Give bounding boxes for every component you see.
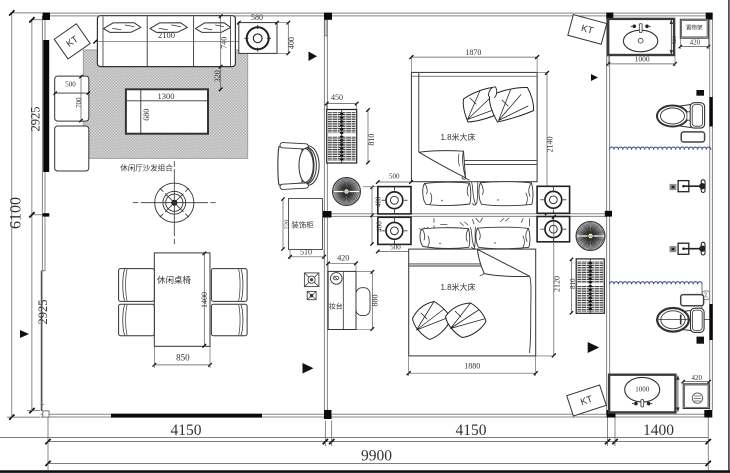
svg-text:420: 420 [337, 254, 349, 263]
svg-text:510: 510 [300, 248, 312, 257]
svg-text:1870: 1870 [465, 48, 481, 57]
svg-text:220: 220 [284, 220, 291, 230]
svg-text:1.8米大床: 1.8米大床 [440, 282, 475, 292]
svg-text:妆台: 妆台 [329, 302, 343, 311]
svg-text:400: 400 [287, 37, 296, 49]
svg-text:400: 400 [375, 196, 383, 207]
svg-text:400: 400 [376, 221, 384, 232]
svg-text:装饰柜: 装饰柜 [291, 220, 314, 230]
svg-text:1000: 1000 [635, 386, 650, 394]
svg-text:2140: 2140 [546, 137, 555, 153]
svg-text:9900: 9900 [361, 447, 392, 464]
svg-text:1000: 1000 [635, 55, 650, 64]
svg-text:2925: 2925 [36, 300, 50, 325]
svg-text:450: 450 [331, 93, 343, 102]
svg-text:2925: 2925 [29, 107, 43, 132]
svg-text:810: 810 [569, 278, 577, 289]
svg-text:420: 420 [692, 374, 703, 382]
svg-text:置物架: 置物架 [686, 24, 703, 32]
svg-text:700: 700 [75, 97, 83, 108]
svg-text:420: 420 [690, 38, 701, 46]
svg-text:850: 850 [176, 352, 190, 362]
svg-text:500: 500 [389, 173, 400, 181]
svg-text:休闲桌椅: 休闲桌椅 [157, 275, 192, 285]
svg-text:880: 880 [371, 295, 380, 307]
svg-text:4150: 4150 [171, 422, 202, 439]
svg-text:2100: 2100 [158, 30, 175, 40]
svg-text:680: 680 [142, 109, 151, 121]
svg-text:1400: 1400 [643, 422, 674, 439]
svg-text:1.8米大床: 1.8米大床 [440, 132, 475, 142]
svg-text:1400: 1400 [200, 292, 209, 308]
svg-text:1300: 1300 [158, 91, 175, 101]
svg-text:580: 580 [251, 13, 263, 22]
svg-text:6100: 6100 [8, 197, 25, 229]
svg-text:2120: 2120 [553, 276, 562, 292]
svg-text:500: 500 [65, 81, 76, 89]
svg-text:320: 320 [213, 70, 222, 82]
svg-text:4150: 4150 [456, 422, 487, 439]
svg-text:740: 740 [219, 37, 228, 49]
svg-text:500: 500 [390, 243, 401, 251]
svg-text:休闲厅沙发组合: 休闲厅沙发组合 [120, 162, 173, 172]
svg-text:520: 520 [672, 36, 678, 45]
svg-text:810: 810 [367, 134, 376, 146]
svg-text:1880: 1880 [464, 362, 480, 371]
